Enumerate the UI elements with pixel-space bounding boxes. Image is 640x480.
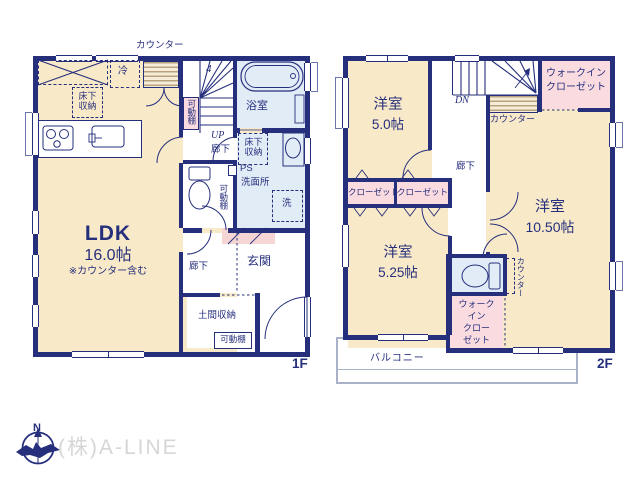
wic-bottom-label-line1: ウォーク — [450, 299, 503, 309]
fridge-label: 冷 — [118, 66, 128, 78]
company-name: (株)A-LINE — [58, 436, 179, 460]
wic-bottom-label-line3: クロー — [450, 323, 503, 333]
underfloor-storage-kitchen-label: 床下収納 — [75, 91, 100, 112]
step-hatch — [228, 228, 266, 244]
bathtub-icon — [241, 62, 304, 123]
closet-left-label: クローゼット — [348, 188, 394, 198]
room105-name-label: 洋室 — [490, 198, 610, 215]
wic-bottom-label-line4: ゼット — [450, 335, 503, 345]
counter-kitchen-label: カウンター — [136, 41, 184, 52]
movable-shelf-stair-label: 可動棚 — [186, 99, 196, 125]
toilet-2f-icon — [462, 263, 500, 289]
dn-label: DN — [455, 95, 469, 107]
doma-storage-label: 土間収納 — [198, 311, 236, 322]
movable-shelf-wash-label: 可動棚 — [218, 184, 228, 210]
wic-top-label-line2: クローゼット — [542, 82, 610, 94]
stairs-2f-icon — [453, 61, 538, 95]
movable-shelf-doma-label: 可動棚 — [214, 335, 252, 345]
counter-stair-label: カウンター — [490, 114, 535, 124]
room525-name-label: 洋室 — [348, 245, 448, 262]
hall-lower-label: 廊下 — [189, 262, 208, 273]
washer-label: 洗 — [282, 199, 292, 210]
ldk-note-label: ※カウンター含む — [38, 266, 178, 278]
stair-number-label: 4 — [206, 63, 212, 76]
room5-size-label: 5.0帖 — [348, 117, 428, 133]
ldk-name-label: LDK — [38, 222, 178, 246]
floor1-label: 1F — [292, 356, 308, 372]
cabinet-x-icon — [38, 60, 108, 85]
underfloor-storage-wash-label: 床下収納 — [241, 137, 266, 158]
wic-top-label-line1: ウォークイン — [542, 68, 610, 80]
floorplan-canvas: カウンター 冷 床下収納 可動棚 4 UP 廊下 浴室 床下収納 PS 洗面所 … — [0, 0, 640, 480]
room5-name-label: 洋室 — [348, 97, 428, 114]
hall-upper-label: 廊下 — [211, 145, 230, 156]
ldk-size-label: 16.0帖 — [38, 247, 178, 265]
ps-label: PS — [240, 164, 253, 175]
hall-2f-label: 廊下 — [456, 162, 475, 173]
toilet-1f-icon — [189, 167, 210, 209]
floor2-label: 2F — [597, 356, 613, 372]
compass-n-label: N — [33, 422, 41, 435]
stairs-1f-icon — [200, 61, 233, 133]
balcony-label: バルコニー — [370, 353, 425, 365]
room105-size-label: 10.50帖 — [490, 219, 610, 235]
wic-bottom-label-line2: イン — [450, 311, 503, 321]
washbasin-icon — [283, 133, 304, 166]
kitchen-sink-icon — [89, 126, 124, 147]
bathroom-label: 浴室 — [246, 100, 268, 113]
counter-desk-label: カウンター — [516, 257, 525, 297]
entrance-label: 玄関 — [247, 255, 271, 269]
room525-size-label: 5.25帖 — [348, 265, 448, 281]
stove-icon — [43, 126, 73, 150]
washroom-label: 洗面所 — [241, 178, 270, 189]
closet-right-label: クローゼット — [397, 188, 448, 198]
up-label: UP — [211, 130, 224, 142]
